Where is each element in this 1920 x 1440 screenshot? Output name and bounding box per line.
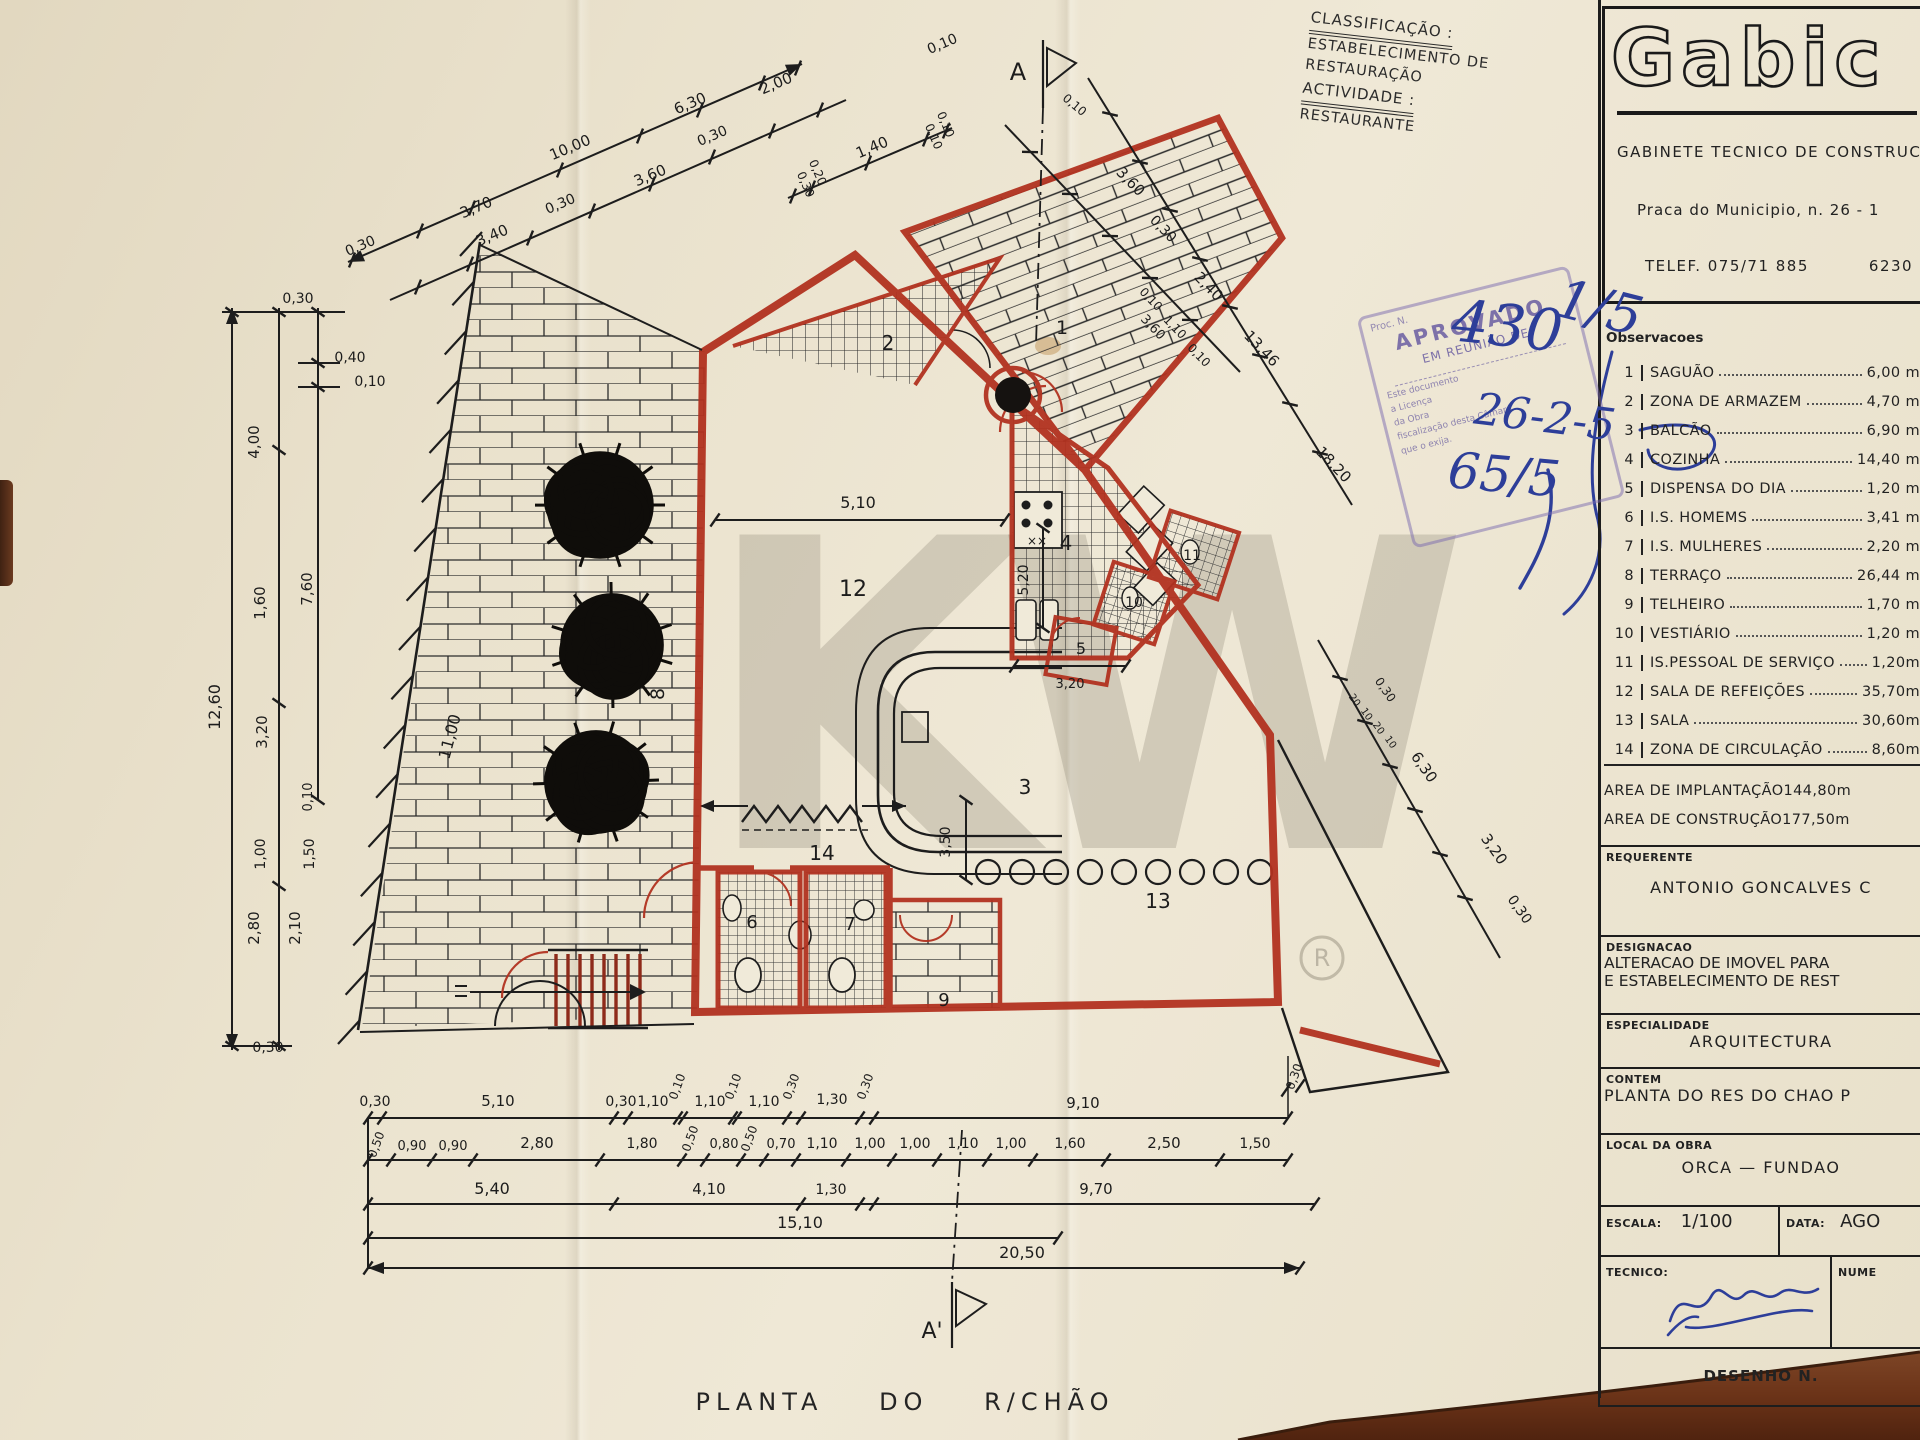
dimension-label: 1,10 bbox=[748, 1094, 779, 1110]
dimension-label: 13,46 bbox=[1240, 327, 1283, 370]
firm-name: GABINETE TECNICO DE CONSTRUCAO bbox=[1617, 143, 1920, 161]
observacoes-row: 11IS.PESSOAL DE SERVIÇO1,20m bbox=[1604, 642, 1920, 671]
dimension-label: 1,10 bbox=[637, 1094, 668, 1110]
data-value: AGO bbox=[1840, 1211, 1880, 1232]
dimension-label: 3,40 bbox=[473, 221, 511, 251]
room-area: 1,70 m bbox=[1867, 597, 1920, 613]
dotted-leader bbox=[1725, 461, 1852, 463]
dimension-label: 0,40 bbox=[334, 350, 365, 366]
area-total-row: AREA DE CONSTRUÇÃO177,50m bbox=[1604, 799, 1920, 828]
dimension-label: 0,10 bbox=[1060, 91, 1089, 119]
dimension-label: 1,00 bbox=[995, 1136, 1026, 1152]
dimension-label: 0,30 bbox=[854, 1072, 876, 1102]
room-name: SAGUÃO bbox=[1650, 365, 1714, 381]
dimension-label: 1,60 bbox=[251, 586, 269, 619]
dimension-label: 1,80 bbox=[626, 1136, 657, 1152]
room-name: SALA DE REFEIÇÕES bbox=[1650, 684, 1805, 700]
local-value: ORCA — FUNDAO bbox=[1600, 1158, 1920, 1177]
dimension-label: 0,30 bbox=[359, 1094, 390, 1110]
dimension-label: 5,40 bbox=[474, 1179, 510, 1198]
observacoes-title: Observacoes bbox=[1606, 330, 1920, 346]
room-name: I.S. HOMEMS bbox=[1650, 510, 1747, 526]
room-name: ZONA DE CIRCULAÇÃO bbox=[1650, 742, 1823, 758]
room-number: 6 bbox=[746, 912, 757, 933]
observacoes-row: 12SALA DE REFEIÇÕES35,70m bbox=[1604, 671, 1920, 700]
observacoes-row: 4COZINHA14,40 m bbox=[1604, 439, 1920, 468]
room-name: IS.PESSOAL DE SERVIÇO bbox=[1650, 655, 1835, 671]
room-index: 11 bbox=[1604, 655, 1643, 671]
local-label: LOCAL DA OBRA bbox=[1600, 1135, 1920, 1152]
dimension-label: 0,80 bbox=[710, 1137, 739, 1152]
escala-label: ESCALA: bbox=[1600, 1217, 1662, 1230]
dimension-label: 0,30 bbox=[1283, 1062, 1305, 1092]
dimension-label: 0,30 bbox=[282, 291, 313, 307]
dimension-label: 1,50 bbox=[302, 838, 318, 869]
dimension-label: 9,70 bbox=[1079, 1180, 1112, 1198]
room-name: I.S. MULHERES bbox=[1650, 539, 1762, 555]
dimension-label: 0,30 bbox=[543, 191, 578, 218]
room-number: 11 bbox=[1183, 548, 1201, 564]
dimension-label: 4,10 bbox=[692, 1180, 725, 1198]
dimension-label: 1,30 bbox=[815, 1182, 846, 1198]
dotted-leader bbox=[1694, 722, 1857, 724]
handwritten-number-1: 430 bbox=[1449, 286, 1566, 365]
dimension-label: 1,40 bbox=[853, 133, 891, 163]
column bbox=[995, 377, 1031, 413]
logo-underline bbox=[1617, 111, 1917, 115]
room-number: 14 bbox=[809, 841, 834, 865]
requerente-label: REQUERENTE bbox=[1600, 847, 1920, 864]
dimension-label: 0,30 bbox=[605, 1094, 636, 1110]
dotted-leader bbox=[1767, 548, 1861, 550]
room-index: 10 bbox=[1604, 626, 1643, 642]
observacoes-row: 14ZONA DE CIRCULAÇÃO8,60m bbox=[1604, 729, 1920, 758]
contem-box: CONTEM PLANTA DO RES DO CHAO P bbox=[1598, 1067, 1920, 1133]
dimension-label: 1,50 bbox=[1239, 1136, 1270, 1152]
firm-logo-text: Gabic bbox=[1611, 14, 1886, 104]
room-index: 13 bbox=[1604, 713, 1643, 729]
dimension-label: 0,10 bbox=[925, 31, 960, 58]
dimension-label: 3,20 bbox=[1477, 830, 1511, 868]
dotted-leader bbox=[1727, 577, 1852, 579]
room-name: COZINHA bbox=[1650, 452, 1720, 468]
room-area: 14,40 m bbox=[1857, 452, 1920, 468]
dimension-label: 0,10 bbox=[722, 1072, 744, 1102]
dotted-leader bbox=[1828, 751, 1867, 753]
dimension-label: 0,30 bbox=[780, 1072, 802, 1102]
room-name: ZONA DE ARMAZEM bbox=[1650, 394, 1802, 410]
observacoes-row: 7I.S. MULHERES2,20 m bbox=[1604, 526, 1920, 555]
especialidade-label: ESPECIALIDADE bbox=[1600, 1015, 1920, 1032]
observacoes-row: 6I.S. HOMEMS3,41 m bbox=[1604, 497, 1920, 526]
plan-title: PLANTA DO R/CHÃO bbox=[695, 1386, 1114, 1416]
room-number: 4 bbox=[1060, 531, 1073, 555]
tecnico-label: TECNICO: bbox=[1600, 1262, 1668, 1279]
room-number: 3 bbox=[1019, 775, 1032, 799]
room-number: 10 bbox=[1125, 595, 1143, 611]
room-area: 2,20 m bbox=[1867, 539, 1920, 555]
room-area: 6,00 m bbox=[1867, 365, 1920, 381]
dimension-label: 0,10 bbox=[354, 374, 385, 390]
registered-letter: R bbox=[1314, 944, 1331, 972]
dimension-label: 1,10 bbox=[694, 1094, 725, 1110]
numero-cell: NUME bbox=[1830, 1257, 1920, 1347]
escala-data-box: ESCALA: 1/100 DATA: AGO bbox=[1598, 1205, 1920, 1255]
dimension-label: 2,50 bbox=[1147, 1134, 1180, 1152]
dotted-leader bbox=[1810, 693, 1857, 695]
dimension-label: 0,10 bbox=[301, 783, 316, 812]
titleblock: REQUERENTE ANTONIO GONCALVES C DESIGNACA… bbox=[1598, 845, 1920, 1407]
room-number: 13 bbox=[1145, 889, 1170, 913]
area-label: AREA DE IMPLANTAÇÃO bbox=[1604, 783, 1784, 799]
handwritten-number-4: 65/5 bbox=[1446, 441, 1563, 509]
dimension-label: 0,70 bbox=[767, 1137, 796, 1152]
firm-address: Praca do Municipio, n. 26 - 1 bbox=[1637, 201, 1879, 219]
tecnico-signature bbox=[1660, 1265, 1825, 1339]
observacoes-row: 5DISPENSA DO DIA1,20 m bbox=[1604, 468, 1920, 497]
dimension-label: 0,30 bbox=[1504, 892, 1535, 927]
room-name: VESTIÁRIO bbox=[1650, 626, 1731, 642]
escala-value: 1/100 bbox=[1681, 1211, 1733, 1232]
local-box: LOCAL DA OBRA ORCA — FUNDAO bbox=[1598, 1133, 1920, 1205]
room-number: 12 bbox=[839, 577, 867, 602]
firm-logo: Gabic bbox=[1605, 9, 1917, 109]
dimension-label: 3,20 bbox=[253, 715, 271, 748]
observacoes-row: 10VESTIÁRIO1,20 m bbox=[1604, 613, 1920, 642]
especialidade-box: ESPECIALIDADE ARQUITECTURA bbox=[1598, 1013, 1920, 1067]
dimension-label: 12,60 bbox=[205, 684, 224, 730]
dimension-label: 9,10 bbox=[1066, 1094, 1099, 1112]
dimension-label: 5,20 bbox=[1016, 564, 1032, 595]
especialidade-value: ARQUITECTURA bbox=[1600, 1032, 1920, 1051]
dimension-label: 2,80 bbox=[245, 911, 263, 944]
area-value: 144,80m bbox=[1784, 783, 1852, 799]
dotted-leader bbox=[1719, 374, 1861, 376]
room-name: BALCÃO bbox=[1650, 423, 1712, 439]
area-label: AREA DE CONSTRUÇÃO bbox=[1604, 812, 1782, 828]
observacoes-row: 8TERRAÇO26,44 m bbox=[1604, 555, 1920, 584]
dimension-label: 5,10 bbox=[481, 1092, 514, 1110]
dimension-label: 20,50 bbox=[999, 1243, 1045, 1262]
dimension-label: 1,30 bbox=[816, 1092, 847, 1108]
dimension-label: 15,10 bbox=[777, 1213, 823, 1232]
area-total-row: AREA DE IMPLANTAÇÃO144,80m bbox=[1604, 764, 1920, 799]
dimension-label: 7,60 bbox=[298, 572, 316, 605]
dimension-label: 0,30 bbox=[252, 1040, 283, 1056]
firm-box: Gabic GABINETE TECNICO DE CONSTRUCAO Pra… bbox=[1602, 6, 1920, 304]
dimension-label: 0,90 bbox=[398, 1139, 427, 1154]
dimension-label: 5,10 bbox=[840, 493, 876, 512]
dimension-label: 1,10 bbox=[947, 1136, 978, 1152]
room-name: SALA bbox=[1650, 713, 1689, 729]
room-index: 8 bbox=[1604, 568, 1643, 584]
dimension-label: 0,10 bbox=[1185, 341, 1214, 370]
desenho-label: DESENHO N. bbox=[1600, 1367, 1920, 1385]
room-number: 9 bbox=[938, 990, 949, 1011]
dotted-leader bbox=[1840, 664, 1867, 666]
room-number: 1 bbox=[1056, 317, 1068, 339]
data-label: DATA: bbox=[1780, 1217, 1825, 1230]
room-area: 35,70m bbox=[1862, 684, 1920, 700]
area-value: 177,50m bbox=[1782, 812, 1850, 828]
observacoes-row: 9TELHEIRO1,70 m bbox=[1604, 584, 1920, 613]
room-number: 8 bbox=[647, 688, 669, 700]
requerente-value: ANTONIO GONCALVES C bbox=[1600, 878, 1920, 897]
dimension-label: 2,10 bbox=[286, 911, 304, 944]
dimension-label: 3,50 bbox=[938, 826, 954, 857]
section-marker-label: A bbox=[1010, 58, 1027, 86]
desenho-box: DESENHO N. bbox=[1598, 1347, 1920, 1407]
dimension-label: 4,00 bbox=[245, 425, 263, 458]
tecnico-cell: TECNICO: bbox=[1600, 1257, 1830, 1347]
room-area: 1,20 m bbox=[1867, 481, 1920, 497]
designacao-label: DESIGNACAO bbox=[1600, 937, 1920, 954]
room-area: 1,20m bbox=[1872, 655, 1920, 671]
dimension-line bbox=[348, 64, 802, 262]
designacao-box: DESIGNACAO ALTERACAO DE IMOVEL PARA E ES… bbox=[1598, 935, 1920, 1013]
firm-postal-code: 6230 bbox=[1869, 257, 1913, 275]
dimension-label: 1,10 bbox=[806, 1136, 837, 1152]
requerente-box: REQUERENTE ANTONIO GONCALVES C bbox=[1598, 845, 1920, 935]
room-number: 7 bbox=[844, 914, 855, 935]
dimension-label: 2,80 bbox=[520, 1134, 553, 1152]
designacao-line1: ALTERACAO DE IMOVEL PARA bbox=[1600, 954, 1920, 972]
table-edge-sliver bbox=[0, 480, 13, 586]
room-name: TERRAÇO bbox=[1650, 568, 1722, 584]
room-name: TELHEIRO bbox=[1650, 597, 1725, 613]
firm-phone: TELEF. 075/71 8856230 bbox=[1645, 257, 1913, 275]
dotted-leader bbox=[1730, 606, 1861, 608]
dimension-label: 0,90 bbox=[439, 1139, 468, 1154]
dimension-label: 0,30 bbox=[695, 123, 730, 150]
room-area: 3,41 m bbox=[1867, 510, 1920, 526]
dotted-leader bbox=[1807, 403, 1862, 405]
room-index: 1 bbox=[1604, 365, 1643, 381]
tecnico-box: TECNICO: NUME bbox=[1598, 1255, 1920, 1347]
room-area: 6,90 m bbox=[1867, 423, 1920, 439]
room-area: 4,70 m bbox=[1867, 394, 1920, 410]
room-index: 7 bbox=[1604, 539, 1643, 555]
room-index: 12 bbox=[1604, 684, 1643, 700]
room-area: 1,20 m bbox=[1867, 626, 1920, 642]
dimension-line bbox=[390, 100, 846, 300]
numero-label: NUME bbox=[1832, 1262, 1877, 1279]
room-number: 2 bbox=[882, 331, 895, 355]
dimension-line bbox=[338, 1020, 360, 1044]
dimension-label: 1,00 bbox=[899, 1136, 930, 1152]
dimension-label: 0,10 bbox=[666, 1072, 688, 1102]
room-area: 26,44 m bbox=[1857, 568, 1920, 584]
room-area: 30,60m bbox=[1862, 713, 1920, 729]
dimension-label: 3,70 bbox=[457, 193, 495, 223]
room-number: 5 bbox=[1076, 639, 1086, 658]
room-index: 6 bbox=[1604, 510, 1643, 526]
data-cell: DATA: AGO bbox=[1778, 1207, 1920, 1255]
observacoes-row: 2ZONA DE ARMAZEM4,70 m bbox=[1604, 381, 1920, 410]
room-area: 8,60m bbox=[1872, 742, 1920, 758]
dimension-label: 1,00 bbox=[253, 838, 269, 869]
dimension-label: 1,60 bbox=[1054, 1136, 1085, 1152]
dotted-leader bbox=[1736, 635, 1862, 637]
room-name: DISPENSA DO DIA bbox=[1650, 481, 1786, 497]
observacoes-row: 3BALCÃO6,90 m bbox=[1604, 410, 1920, 439]
dotted-leader bbox=[1791, 490, 1862, 492]
contem-value: PLANTA DO RES DO CHAO P bbox=[1600, 1086, 1920, 1105]
room-index: 9 bbox=[1604, 597, 1643, 613]
observacoes-row: 13SALA30,60m bbox=[1604, 700, 1920, 729]
dotted-leader bbox=[1752, 519, 1861, 521]
contem-label: CONTEM bbox=[1600, 1069, 1920, 1086]
dimension-label: 0,50 bbox=[738, 1124, 760, 1154]
dotted-leader bbox=[1717, 432, 1862, 434]
escala-cell: ESCALA: 1/100 bbox=[1600, 1207, 1778, 1255]
section-marker-label: A' bbox=[921, 1319, 942, 1344]
observacoes-row: 1SAGUÃO6,00 m bbox=[1604, 352, 1920, 381]
dimension-label: 2,00 bbox=[757, 69, 795, 99]
room-index: 14 bbox=[1604, 742, 1643, 758]
dimension-label: 1,00 bbox=[854, 1136, 885, 1152]
observacoes-table: Observacoes 1SAGUÃO6,00 m2ZONA DE ARMAZE… bbox=[1604, 330, 1920, 828]
blueprint-photo: KW R bbox=[0, 0, 1920, 1440]
dimension-label: 3,20 bbox=[1056, 677, 1085, 692]
firm-phone-number: TELEF. 075/71 885 bbox=[1645, 257, 1809, 275]
designacao-line2: E ESTABELECIMENTO DE REST bbox=[1600, 972, 1920, 990]
svg-text:××: ×× bbox=[1027, 534, 1047, 548]
dimension-label: 0,50 bbox=[679, 1124, 701, 1154]
